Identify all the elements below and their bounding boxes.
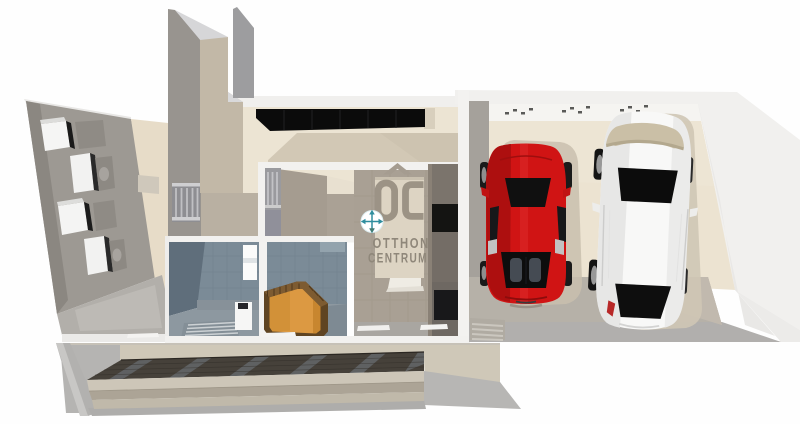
svg-text:OTTHON: OTTHON bbox=[373, 234, 430, 251]
svg-text:CENTRUM: CENTRUM bbox=[368, 250, 428, 266]
